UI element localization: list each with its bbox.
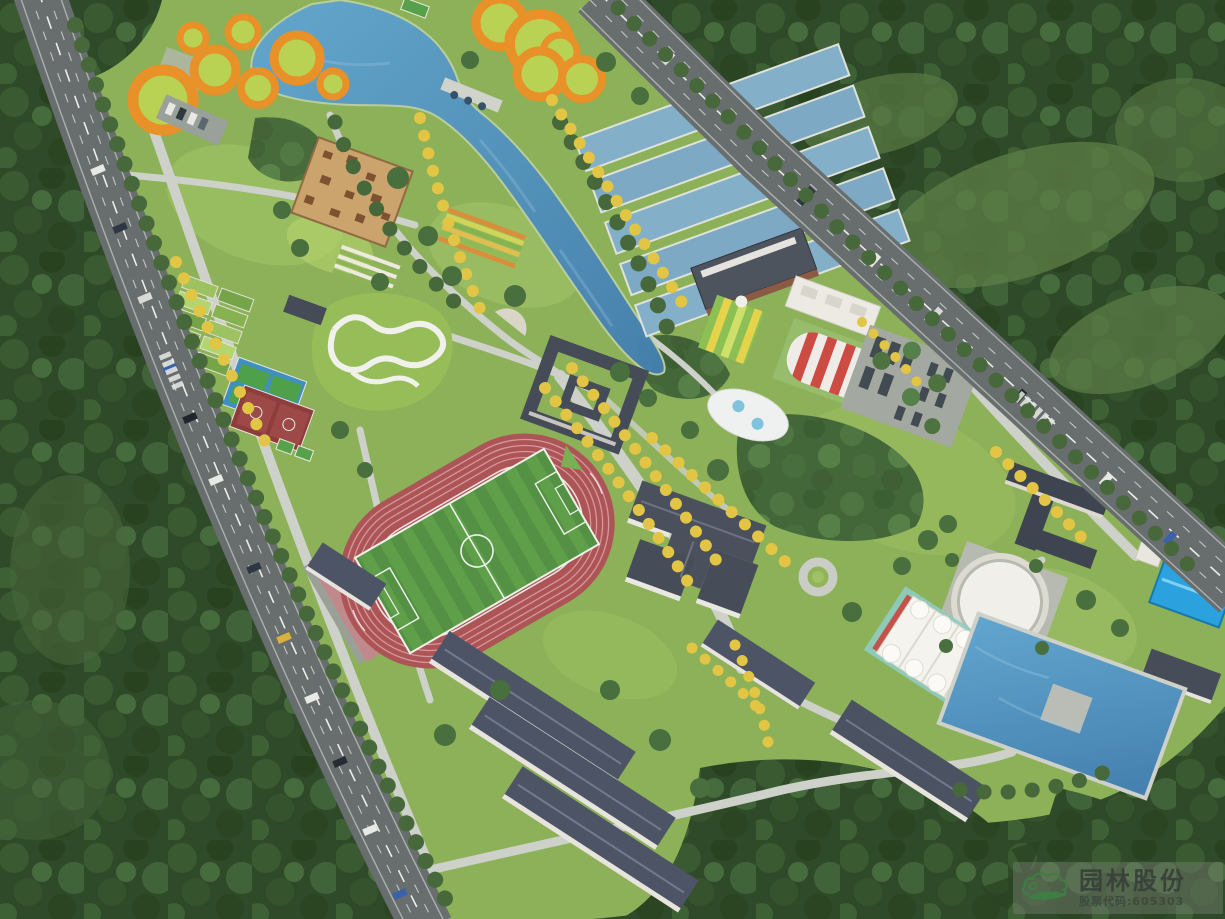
cloud-landscape-logo <box>1019 868 1073 908</box>
watermark-stock-code: 股票代码:605303 <box>1079 896 1187 908</box>
watermark-company-name: 园林股份 <box>1079 869 1187 894</box>
aerial-render-canvas: 园林股份 股票代码:605303 <box>0 0 1225 919</box>
roundabout <box>803 562 833 592</box>
watermark: 园林股份 股票代码:605303 <box>1013 862 1223 914</box>
scene <box>0 0 1225 919</box>
